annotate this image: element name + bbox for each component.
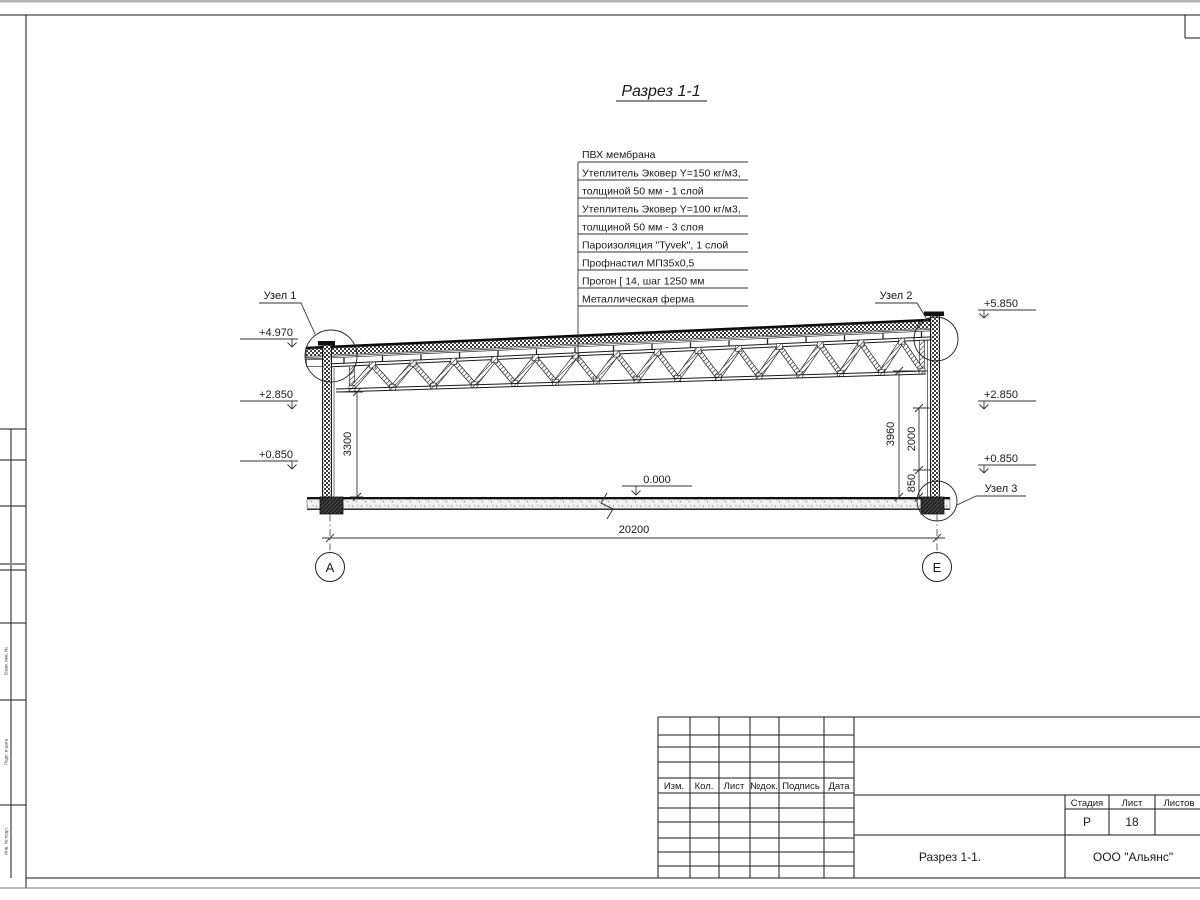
frame-label-v3: Инв. № подл. — [4, 827, 9, 855]
tb-company: ООО "Альянс" — [1093, 850, 1173, 864]
section-drawing: Взам. инв. № Подп. и дата Инв. № подл. Р… — [0, 0, 1200, 900]
dim-right-upper: 2000 — [906, 427, 918, 451]
callout-line-3: толщиной 50 мм - 1 слой — [582, 186, 704, 198]
level-right-2: +2.850 — [984, 389, 1018, 401]
tb-sheet-label: Лист — [1122, 798, 1143, 809]
tb-col-data: Дата — [828, 781, 850, 792]
axis-bubbles: А Е — [316, 553, 952, 582]
floor-slab — [307, 493, 950, 519]
callout-line-6: Пароизоляция "Tyvek", 1 слой — [582, 240, 728, 252]
dim-right-lower: 850 — [906, 474, 918, 492]
tb-col-podpis: Подпись — [782, 781, 820, 792]
callout-line-2: Утеплитель Эковер Y=150 кг/м3, — [582, 168, 741, 180]
sheet-frame: Взам. инв. № Подп. и дата Инв. № подл. — [0, 0, 1200, 888]
tb-stage-label: Стадия — [1071, 798, 1103, 809]
tb-col-list: Лист — [724, 781, 745, 792]
node3-label: Узел 3 — [985, 483, 1018, 495]
frame-label-v1: Взам. инв. № — [4, 647, 9, 675]
tb-stage-value: Р — [1083, 815, 1091, 829]
level-zero: 0.000 — [643, 474, 671, 486]
axis-e-label: Е — [933, 560, 942, 575]
callout-line-9: Металлическая ферма — [582, 294, 694, 306]
tb-col-kol: Кол. — [695, 781, 714, 792]
level-right-1: +5.850 — [984, 298, 1018, 310]
axis-a-label: А — [326, 560, 335, 575]
level-left-3: +0.850 — [259, 449, 293, 461]
view-title-text: Разрез 1-1 — [621, 83, 700, 100]
view-title: Разрез 1-1 — [616, 83, 707, 101]
level-right-3: +0.850 — [984, 453, 1018, 465]
callout-line-7: Профнастил МП35х0,5 — [582, 258, 694, 270]
callout-line-1: ПВХ мембрана — [582, 149, 656, 161]
tb-col-dok: №док. — [750, 781, 778, 792]
dimensions: 20200 3300 3960 2000 850 — [322, 367, 945, 554]
level-left-1: +4.970 — [259, 327, 293, 339]
tb-sheets-label: Листов — [1164, 798, 1195, 809]
level-left-2: +2.850 — [259, 389, 293, 401]
tb-col-izm: Изм. — [664, 781, 684, 792]
title-block: Изм. Кол. Лист №док. Подпись Дата Стадия… — [658, 717, 1200, 878]
left-parapet-cap — [318, 341, 335, 346]
frame-label-v2: Подп. и дата — [4, 738, 9, 765]
right-parapet-cap — [924, 312, 944, 317]
node2-label: Узел 2 — [880, 290, 913, 302]
tb-doc-title: Разрез 1-1. — [919, 850, 981, 864]
dim-span: 20200 — [619, 524, 650, 536]
right-wall — [924, 312, 944, 498]
dim-left-height: 3300 — [342, 432, 354, 456]
callout-line-4: Утеплитель Эковер Y=100 кг/м3, — [582, 204, 741, 216]
drawing-sheet: Взам. инв. № Подп. и дата Инв. № подл. Р… — [0, 0, 1200, 900]
dim-right-height: 3960 — [885, 422, 897, 446]
callout-line-5: толщиной 50 мм - 3 слоя — [582, 222, 704, 234]
right-footing — [921, 497, 944, 514]
node1-label: Узел 1 — [264, 290, 297, 302]
left-footing — [320, 497, 343, 514]
callout-line-8: Прогон [ 14, шаг 1250 мм — [582, 276, 704, 288]
tb-sheet-value: 18 — [1125, 815, 1139, 829]
